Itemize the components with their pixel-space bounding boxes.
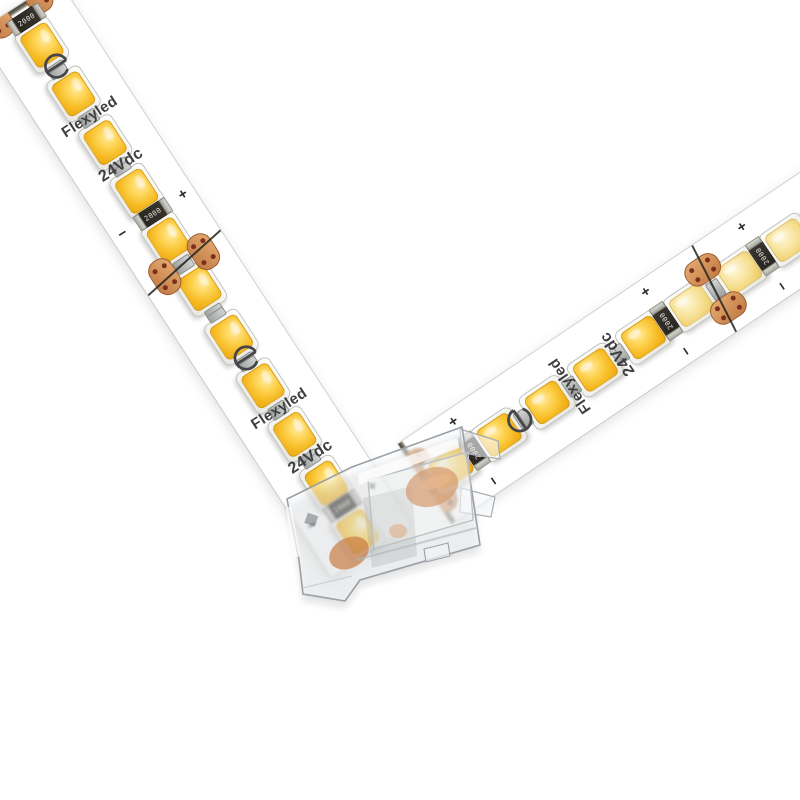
corner-connector [0,0,800,800]
product-photo: 2000Flexyled24Vdc2000+−Flexyled24Vdc2000… [0,0,800,800]
